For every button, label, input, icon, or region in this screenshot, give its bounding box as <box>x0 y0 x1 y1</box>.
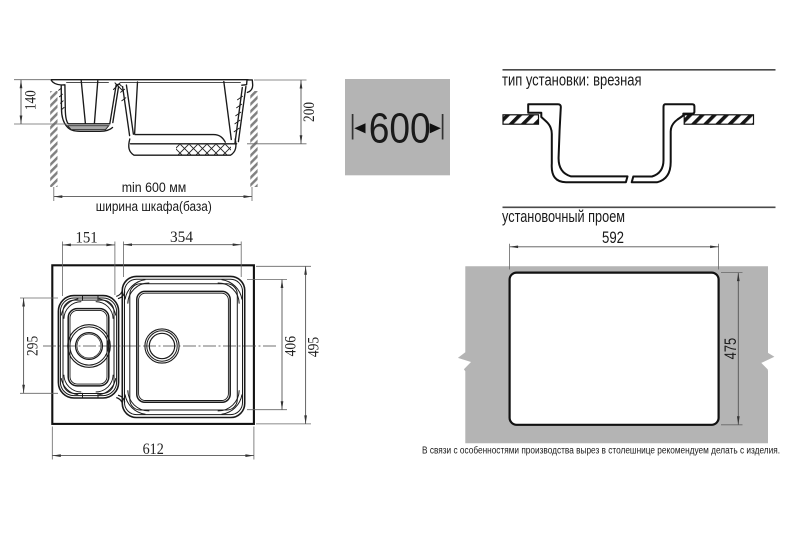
svg-text:354: 354 <box>170 229 193 246</box>
svg-text:ширина шкафа(база): ширина шкафа(база) <box>96 199 212 214</box>
svg-text:406: 406 <box>283 336 300 357</box>
svg-text:475: 475 <box>722 338 740 360</box>
svg-text:600: 600 <box>369 106 431 153</box>
svg-text:592: 592 <box>602 229 624 247</box>
svg-text:установочный проем: установочный проем <box>502 208 625 226</box>
svg-text:В связи с особенностями произв: В связи с особенностями производства выр… <box>422 444 780 456</box>
svg-text:200: 200 <box>301 102 318 122</box>
svg-text:тип установки: врезная: тип установки: врезная <box>502 71 642 89</box>
svg-text:495: 495 <box>306 337 323 358</box>
svg-text:612: 612 <box>143 441 164 458</box>
svg-text:151: 151 <box>75 230 97 247</box>
svg-text:295: 295 <box>24 336 41 356</box>
svg-text:140: 140 <box>23 90 40 110</box>
svg-text:min 600 мм: min 600 мм <box>122 180 187 196</box>
